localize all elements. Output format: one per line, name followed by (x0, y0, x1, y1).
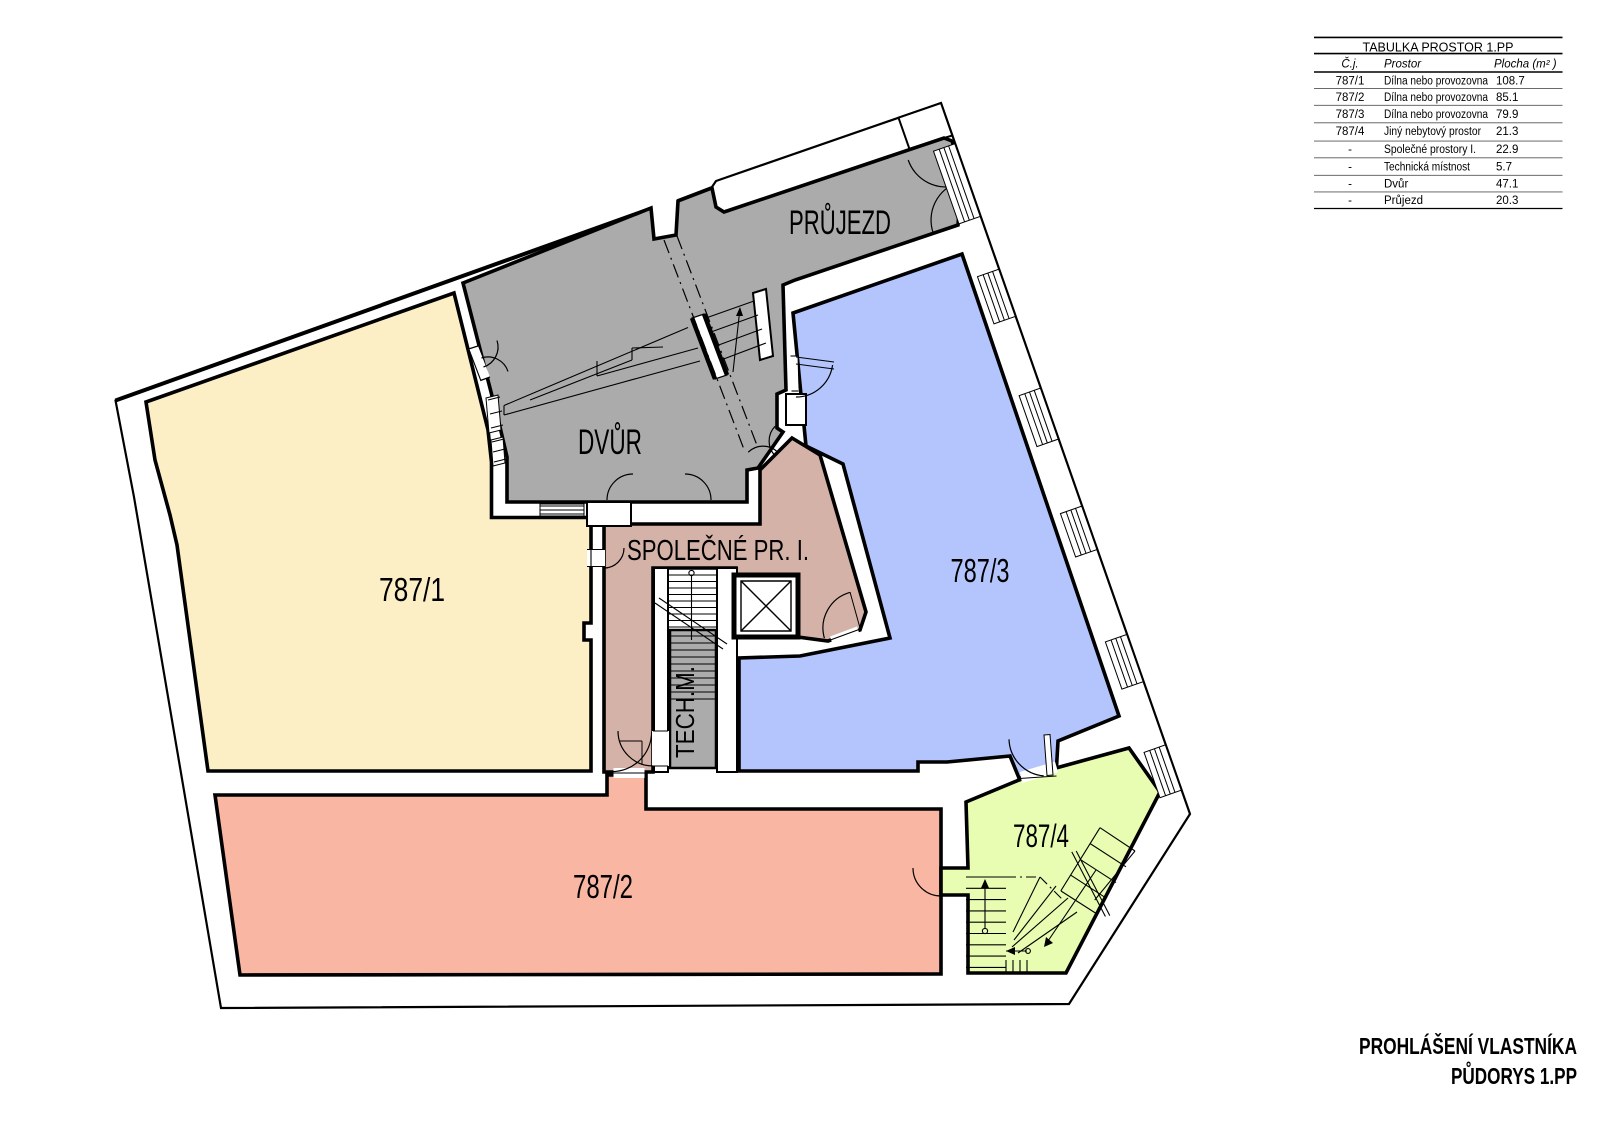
svg-text:-: - (1348, 144, 1352, 156)
svg-text:79.9: 79.9 (1496, 109, 1518, 121)
svg-text:20.3: 20.3 (1496, 195, 1518, 207)
svg-text:22.9: 22.9 (1496, 144, 1518, 156)
svg-text:TABULKA PROSTOR 1.PP: TABULKA PROSTOR 1.PP (1363, 41, 1514, 55)
svg-text:-: - (1348, 179, 1352, 191)
svg-text:787/1: 787/1 (379, 571, 445, 608)
svg-text:PŮDORYS 1.PP: PŮDORYS 1.PP (1451, 1060, 1577, 1089)
svg-text:Dílna nebo provozovna: Dílna nebo provozovna (1384, 76, 1489, 88)
svg-text:Technická místnost: Technická místnost (1384, 161, 1471, 173)
svg-text:47.1: 47.1 (1496, 179, 1518, 191)
svg-text:21.3: 21.3 (1496, 126, 1518, 138)
svg-text:108.7: 108.7 (1496, 76, 1525, 88)
svg-text:787/3: 787/3 (951, 552, 1010, 589)
svg-text:787/2: 787/2 (573, 868, 633, 905)
svg-text:5.7: 5.7 (1496, 161, 1512, 173)
svg-text:-: - (1348, 161, 1352, 173)
svg-text:787/2: 787/2 (1336, 92, 1365, 104)
svg-text:-: - (1348, 195, 1352, 207)
svg-text:PROHLÁŠENÍ VLASTNÍKA: PROHLÁŠENÍ VLASTNÍKA (1359, 1032, 1577, 1059)
svg-text:Jiný nebytový prostor: Jiný nebytový prostor (1384, 126, 1481, 138)
svg-text:Prostor: Prostor (1384, 59, 1422, 71)
svg-text:DVŮR: DVŮR (578, 422, 642, 462)
svg-text:Průjezd: Průjezd (1384, 195, 1423, 207)
svg-text:Dílna nebo provozovna: Dílna nebo provozovna (1384, 92, 1489, 104)
svg-text:Plocha (m² ): Plocha (m² ) (1494, 59, 1557, 71)
svg-text:787/1: 787/1 (1336, 76, 1365, 88)
svg-text:787/3: 787/3 (1336, 109, 1365, 121)
svg-text:Dílna nebo provozovna: Dílna nebo provozovna (1384, 109, 1489, 121)
svg-text:85.1: 85.1 (1496, 92, 1518, 104)
svg-text:PRŮJEZD: PRŮJEZD (789, 203, 891, 242)
svg-text:787/4: 787/4 (1336, 126, 1365, 138)
svg-text:Č.j.: Č.j. (1341, 58, 1358, 71)
svg-text:SPOLEČNÉ PR. I.: SPOLEČNÉ PR. I. (627, 533, 809, 567)
svg-text:Společné prostory I.: Společné prostory I. (1384, 144, 1476, 156)
svg-text:TECH.M.: TECH.M. (670, 666, 700, 758)
svg-text:787/4: 787/4 (1013, 818, 1069, 854)
svg-text:Dvůr: Dvůr (1384, 179, 1408, 191)
